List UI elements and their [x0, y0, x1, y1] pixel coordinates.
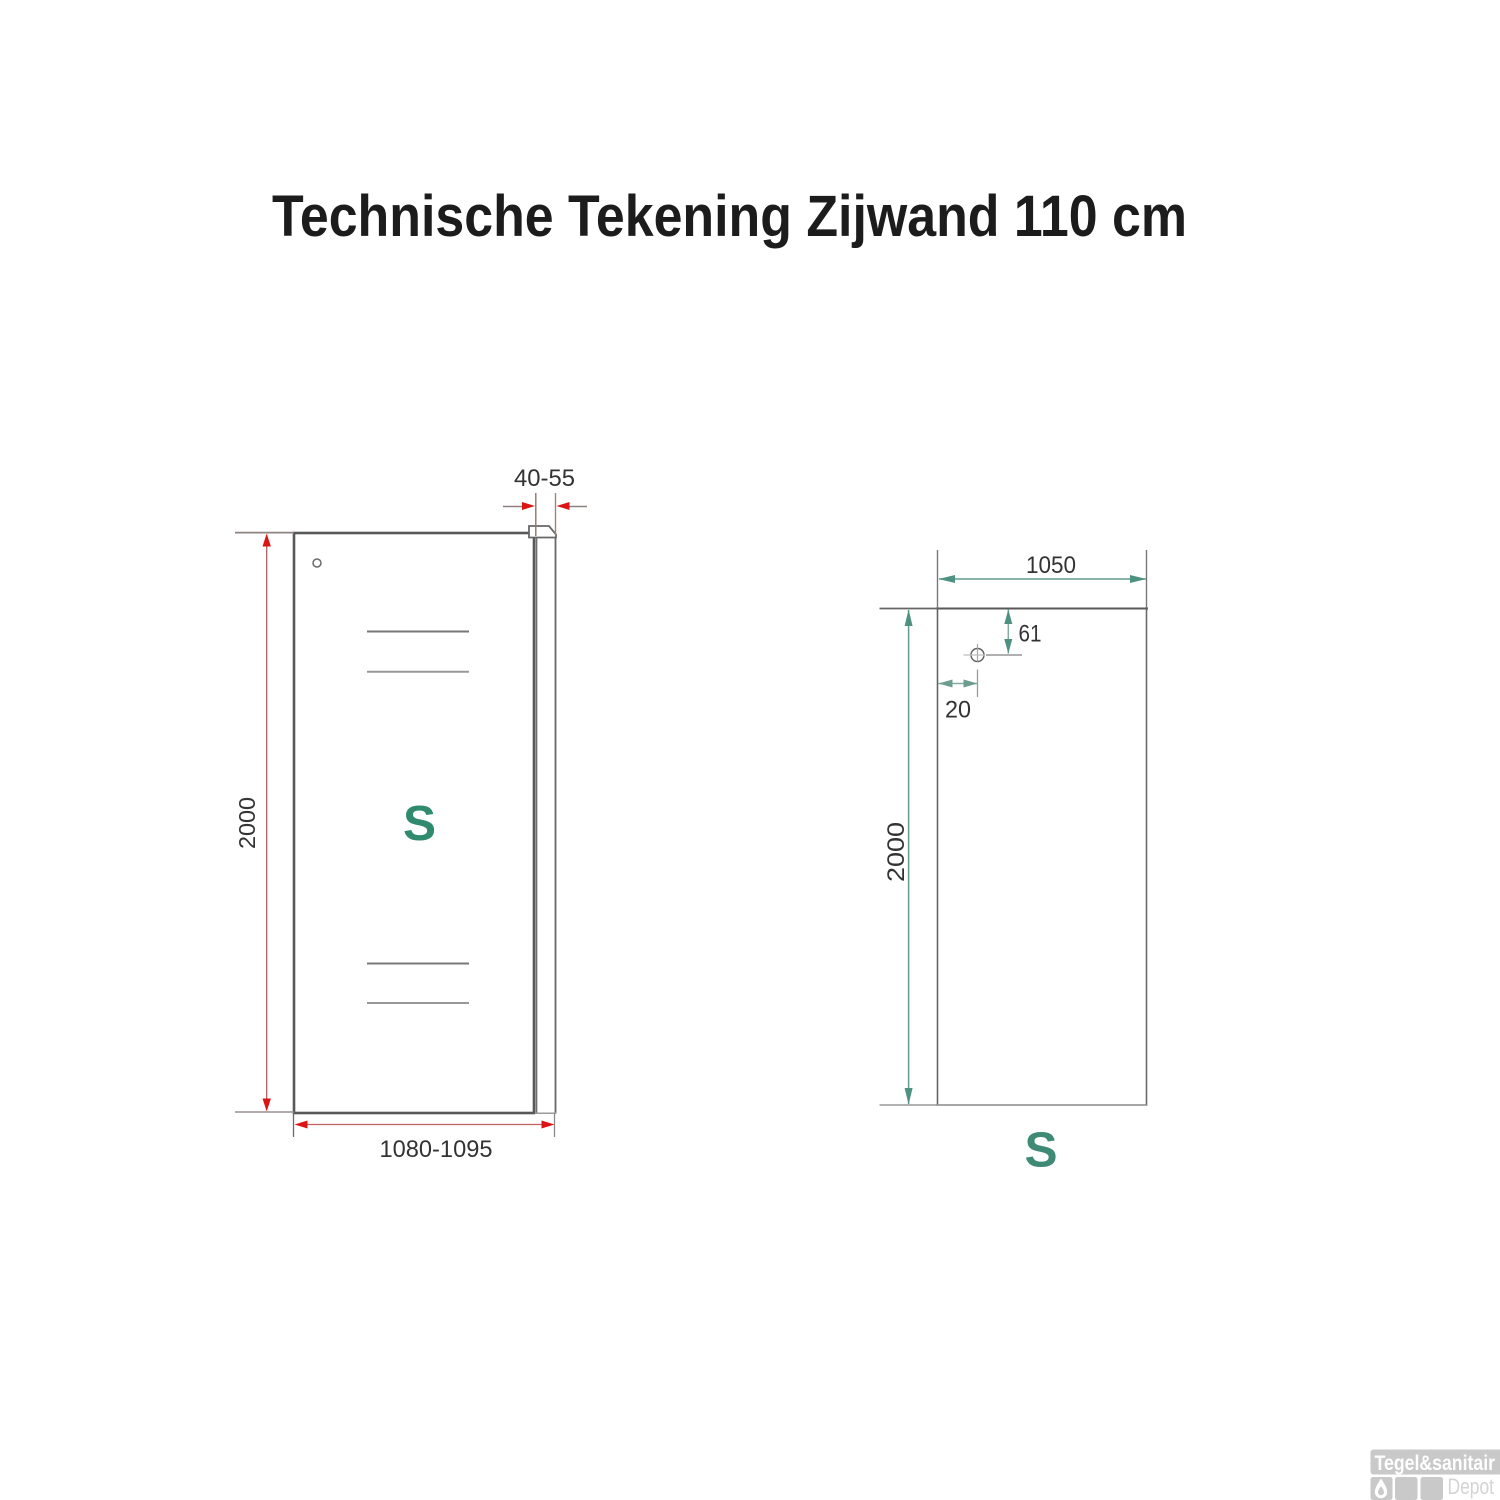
svg-text:1050: 1050 [1026, 552, 1076, 579]
svg-text:2000: 2000 [234, 797, 260, 849]
svg-text:Tegel&sanitair: Tegel&sanitair [1375, 1452, 1496, 1475]
svg-text:S: S [403, 796, 436, 851]
svg-text:S: S [1025, 1123, 1058, 1178]
svg-text:Depot: Depot [1448, 1474, 1495, 1499]
svg-text:2000: 2000 [883, 822, 910, 882]
svg-text:1080-1095: 1080-1095 [380, 1136, 493, 1163]
svg-text:20: 20 [945, 697, 971, 724]
svg-text:40-55: 40-55 [514, 465, 575, 492]
svg-text:61: 61 [1019, 621, 1042, 648]
svg-text:Technische Tekening Zijwand 11: Technische Tekening Zijwand 110 cm [272, 184, 1187, 249]
